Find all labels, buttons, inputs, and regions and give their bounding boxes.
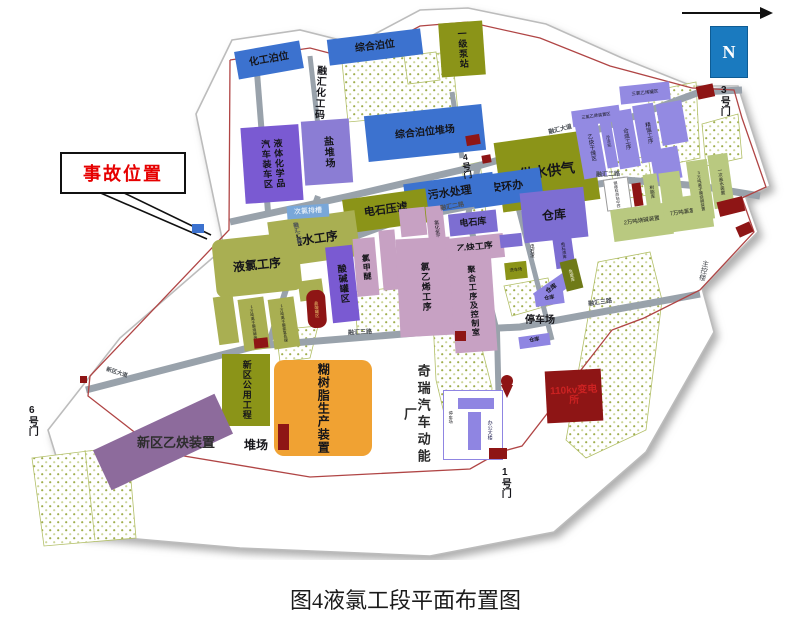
area-pump-station: 一级泵站 <box>438 21 486 78</box>
area-truck-loading: 汽车装车区 液体化学品 <box>240 124 303 204</box>
area-label: 仓库 <box>541 207 566 222</box>
gate-marker-icon <box>192 224 204 233</box>
substation-block <box>455 331 466 341</box>
gate-3-label: 3号门 <box>716 78 730 122</box>
gate-label: 6号门 <box>26 405 37 436</box>
area-label: 盐堆场 <box>321 135 334 169</box>
gate-6-label: 6号门 <box>24 398 38 442</box>
area-salt-yard: 盐堆场 <box>301 118 353 185</box>
area-label: 电石库 <box>459 217 487 229</box>
area-label: 仓库 <box>529 338 540 345</box>
compass-n-icon: N <box>710 26 748 78</box>
label-new-acetylene-plant: 新区乙炔装置 <box>122 434 230 452</box>
area-label: 氯乙烯工序 <box>419 262 431 312</box>
area-label: 乙炔干燥区 <box>585 134 595 162</box>
area-label: 办公大楼 <box>486 420 491 440</box>
road-label-ronghui-2nd: 融汇二路 <box>596 169 620 179</box>
gate-marker-icon <box>481 154 491 163</box>
area-label: 奇瑞汽车动能厂 <box>402 356 429 474</box>
area-hydrochloric-tank: 盐酸罐区 <box>306 289 328 328</box>
area-label: 化工泊位 <box>248 51 289 68</box>
label-parking-mid: 停车场 <box>518 315 562 328</box>
road-name: 融汇二路 <box>596 172 620 179</box>
area-label: 洗车场 <box>510 268 523 274</box>
area-label: 钢瓶检测站中控 <box>614 181 622 208</box>
small-plot <box>499 233 522 248</box>
area-liquid-chlorine-process: 液氯工序 <box>211 232 303 299</box>
area-label: 停车场 <box>525 316 555 327</box>
gate-label: 4号门 <box>460 151 473 179</box>
area-label: 液氯工序 <box>232 256 281 274</box>
gate-label: 3号门 <box>718 85 729 116</box>
accident-location-callout: 事故位置 <box>60 152 186 194</box>
area-new-public-works: 新区公用工程 <box>222 354 270 426</box>
label-chery-plant: 奇瑞汽车动能厂 <box>403 356 429 474</box>
area-label: 聚合工序及控制室 <box>466 265 479 337</box>
accident-location-text: 事故位置 <box>83 160 163 186</box>
area-label: 电石渣 <box>530 244 535 258</box>
area-car-wash: 洗车场 <box>504 261 528 280</box>
area-label: 三氯乙烯装置区 <box>581 112 611 120</box>
area-label: 2万吨烧碱装置 <box>624 217 661 228</box>
area-label: 3万吨离子膜烧碱装置 <box>696 169 706 210</box>
label-stockyard: 堆场 <box>236 438 276 453</box>
figure-caption: 图4液氯工段平面布置图 <box>0 583 811 615</box>
area-label: 新区乙炔装置 <box>137 436 215 450</box>
label-parking-office: 停车场 <box>445 396 456 438</box>
area-label: 停车场 <box>448 411 452 424</box>
area-substation-110kv: 110kv变电所 <box>545 369 604 424</box>
area-label: 电石渣库 <box>560 241 567 258</box>
area-label: 堆场 <box>244 439 268 452</box>
gate-1-label: 1号门 <box>497 462 511 502</box>
area-label: 树脂库 <box>649 185 656 199</box>
area-label: 三氯乙烯罐区 <box>631 89 658 97</box>
area-label: 仓库 <box>544 296 555 303</box>
area-label: 新区公用工程 <box>241 360 250 420</box>
gate-label: 1号门 <box>499 467 510 498</box>
compass-arrow-icon <box>682 7 773 19</box>
area-label: 一级泵站 <box>456 29 468 70</box>
road-name: 融汇三路 <box>348 329 372 336</box>
area-label: 精馏工序 <box>643 122 652 145</box>
figure-page: { "caption": "图4液氯工段平面布置图", "compass": {… <box>0 0 811 620</box>
area-label: 酸碱罐区 <box>336 264 350 305</box>
area-label: 液体化学品 <box>272 138 285 189</box>
area-label: 次氯排槽 <box>294 207 322 216</box>
area-label: 110kv变电所 <box>545 384 602 408</box>
gate-marker-icon <box>254 337 269 348</box>
label-carbide-slag: 电石渣 <box>526 238 538 264</box>
area-cylinder-inspection: 钢瓶检测站中控 <box>603 176 632 211</box>
area-label: 糊树脂生产装置 <box>317 363 330 454</box>
caption-text: 图4液氯工段平面布置图 <box>290 588 521 613</box>
office-building-block <box>468 412 481 450</box>
area-label: 合成工序 <box>621 128 630 151</box>
area-label: 汽车装车区 <box>259 139 272 190</box>
area-label: 氯甲醚 <box>361 253 372 281</box>
compass-letter: N <box>723 42 736 63</box>
gate-marker-icon <box>489 448 507 459</box>
small-plot <box>399 207 428 238</box>
gate-marker-icon <box>80 376 87 383</box>
substation-block <box>278 424 289 450</box>
area-label: 主控楼 <box>698 259 710 281</box>
site-plan-map: 化工泊位 综合泊位 融汇化工码头 一级泵站 汽车装车区 液体化学品 盐堆场 综合… <box>0 0 811 560</box>
area-label: 1万吨离子膜氯氢处理 <box>279 304 288 342</box>
area-label: 盐酸罐区 <box>314 300 320 317</box>
area-label: 综合泊位堆场 <box>395 125 456 142</box>
berth-block <box>399 33 415 54</box>
area-label: 危废库 <box>568 268 575 281</box>
area-label: 冷冻站 <box>605 135 611 148</box>
area-label: 一次盐水装置 <box>717 167 725 194</box>
road-label-ronghui-3rd: 融汇三路 <box>348 326 372 336</box>
area-label: 综合泊位 <box>355 39 396 54</box>
